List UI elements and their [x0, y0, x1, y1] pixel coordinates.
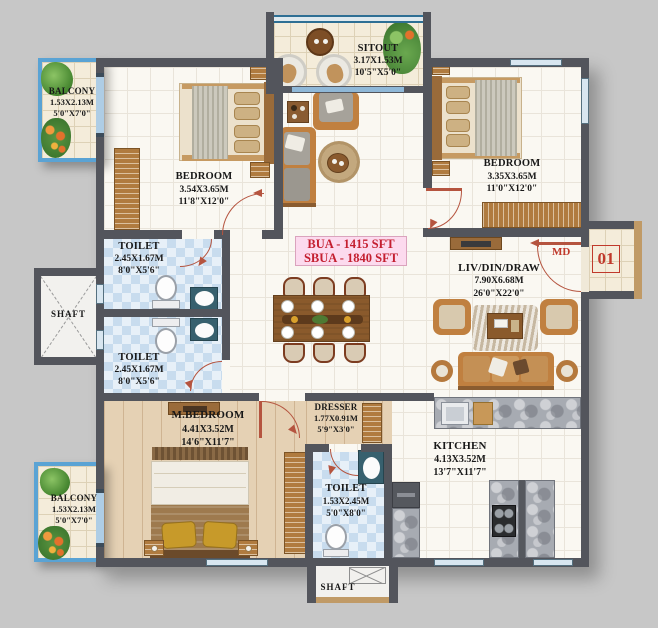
sitout-railing [274, 15, 423, 23]
kitchen-counter [434, 397, 581, 429]
nightstand [144, 540, 164, 556]
toilet-seat [325, 524, 347, 550]
wall [305, 393, 434, 401]
headboard [150, 550, 250, 558]
armchair [433, 299, 471, 335]
wall [104, 58, 275, 67]
window [510, 59, 562, 66]
wall [589, 221, 636, 229]
main-door-label: MD [552, 246, 570, 258]
wall [384, 444, 392, 566]
room-label-shaft-bottom: SHAFT [316, 581, 360, 594]
room-label-kitchen: KITCHEN 4.13X3.52M 13'7"X11'7" [408, 440, 512, 479]
toilet-tank [152, 300, 180, 309]
wall [274, 58, 283, 238]
room-label-bedroom-left: BEDROOM 3.54X3.65M 11'8"X12'0" [154, 171, 254, 209]
room-label-shaft-left: SHAFT [41, 308, 96, 321]
room-label-master-bedroom: M.BEDROOM 4.41X3.52M 14'6"X11'7" [156, 409, 260, 450]
sitout-slider-door [292, 87, 404, 92]
wall [96, 393, 259, 401]
armchair [313, 92, 359, 130]
wall [262, 230, 283, 239]
room-label-living: LIV/DIN/DRAW 7.90X6.68M 26'0"X22'0" [447, 262, 551, 301]
bed [150, 447, 250, 558]
sofa [280, 127, 316, 207]
wall [34, 268, 41, 365]
coffee-table [327, 153, 349, 173]
window [533, 559, 573, 566]
cutting-board [473, 402, 493, 425]
side-table [431, 360, 453, 382]
toilet-tank [152, 318, 180, 327]
kitchen-sink [441, 402, 469, 425]
wall [581, 58, 589, 566]
door-arrow [253, 189, 262, 197]
tv-unit [450, 237, 502, 250]
bua-text: BUA - 1415 SFT [296, 238, 406, 252]
wall [589, 291, 636, 299]
unit-number: 01 [593, 246, 619, 271]
dining-chair [283, 343, 305, 363]
toilet-seat [155, 328, 177, 354]
room-label-sitout: SITOUT 3.17X1.53M 10'5"X5'0" [326, 43, 430, 79]
fridge [525, 480, 555, 558]
side-table [556, 360, 578, 382]
room-label-toilet-master: TOILET 1.53X2.45M 5'0"X8'0" [310, 483, 382, 519]
wall [389, 566, 398, 603]
nightstand [432, 161, 450, 176]
room-label-toilet-mid: TOILET 2.45X1.67M 8'0"X5'6" [99, 352, 179, 388]
window [434, 559, 484, 566]
dining-chair [283, 277, 305, 297]
sofa [458, 352, 554, 390]
headboard [264, 82, 274, 164]
wash-basin [190, 287, 218, 310]
window [581, 78, 589, 124]
blanket [192, 86, 228, 159]
wall [423, 228, 589, 237]
main-door-arrow [530, 239, 539, 247]
dining-chair [313, 277, 335, 297]
room-label-balcony-bottom: BALCONY 1.53X2.13M 5'0"X7'0" [42, 493, 106, 526]
dining-chair [313, 343, 335, 363]
shaft-window [96, 284, 104, 304]
side-table [287, 101, 309, 123]
wall [423, 58, 589, 67]
main-door-opening [581, 247, 589, 292]
main-door-leaf [539, 242, 581, 245]
dining-chair [344, 277, 366, 297]
wall [34, 357, 97, 365]
wardrobe [482, 202, 582, 228]
stove-counter [489, 480, 519, 558]
sbua-text: SBUA - 1840 SFT [296, 252, 406, 266]
area-badge: BUA - 1415 SFT SBUA - 1840 SFT [295, 236, 407, 266]
kitchen-counter [392, 508, 420, 558]
wall [96, 309, 222, 317]
wall [214, 230, 222, 239]
wall [34, 268, 97, 276]
wall [96, 230, 182, 239]
room-label-dresser: DRESSER 1.77X0.91M 5'9"X3'0" [299, 402, 373, 435]
plant [40, 468, 70, 496]
wardrobe [114, 148, 140, 230]
room-label-balcony-top: BALCONY 1.53X2.13M 5'0"X7'0" [40, 86, 104, 119]
window [206, 559, 268, 566]
floor-plan: BALCONY 1.53X2.13M 5'0"X7'0" BEDROOM 3.5… [0, 0, 658, 628]
bed [179, 83, 273, 161]
appliance [392, 482, 420, 508]
dining-chair [344, 343, 366, 363]
coffee-table [487, 313, 523, 339]
nightstand [238, 540, 258, 556]
room-label-bedroom-right: BEDROOM 3.35X3.65M 11'0"X12'0" [462, 158, 562, 196]
toilet-tank [323, 549, 349, 557]
corridor-edge [634, 221, 642, 299]
wash-basin [190, 318, 218, 341]
toilet-mid-door-opening [222, 360, 230, 393]
unit-number-box: 01 [592, 245, 620, 273]
dining-table [273, 295, 370, 342]
room-label-toilet-top: TOILET 2.45X1.67M 8'0"X5'6" [99, 241, 179, 277]
wash-basin [358, 450, 384, 484]
armchair [540, 299, 578, 335]
shaft-window [96, 330, 104, 350]
stove [492, 505, 516, 537]
toilet-seat [155, 275, 177, 301]
shaft-bottom-sill [316, 597, 389, 603]
wall [266, 12, 274, 94]
bed [432, 77, 522, 159]
blanket [475, 80, 517, 156]
headboard [432, 76, 442, 160]
wall [307, 566, 316, 603]
